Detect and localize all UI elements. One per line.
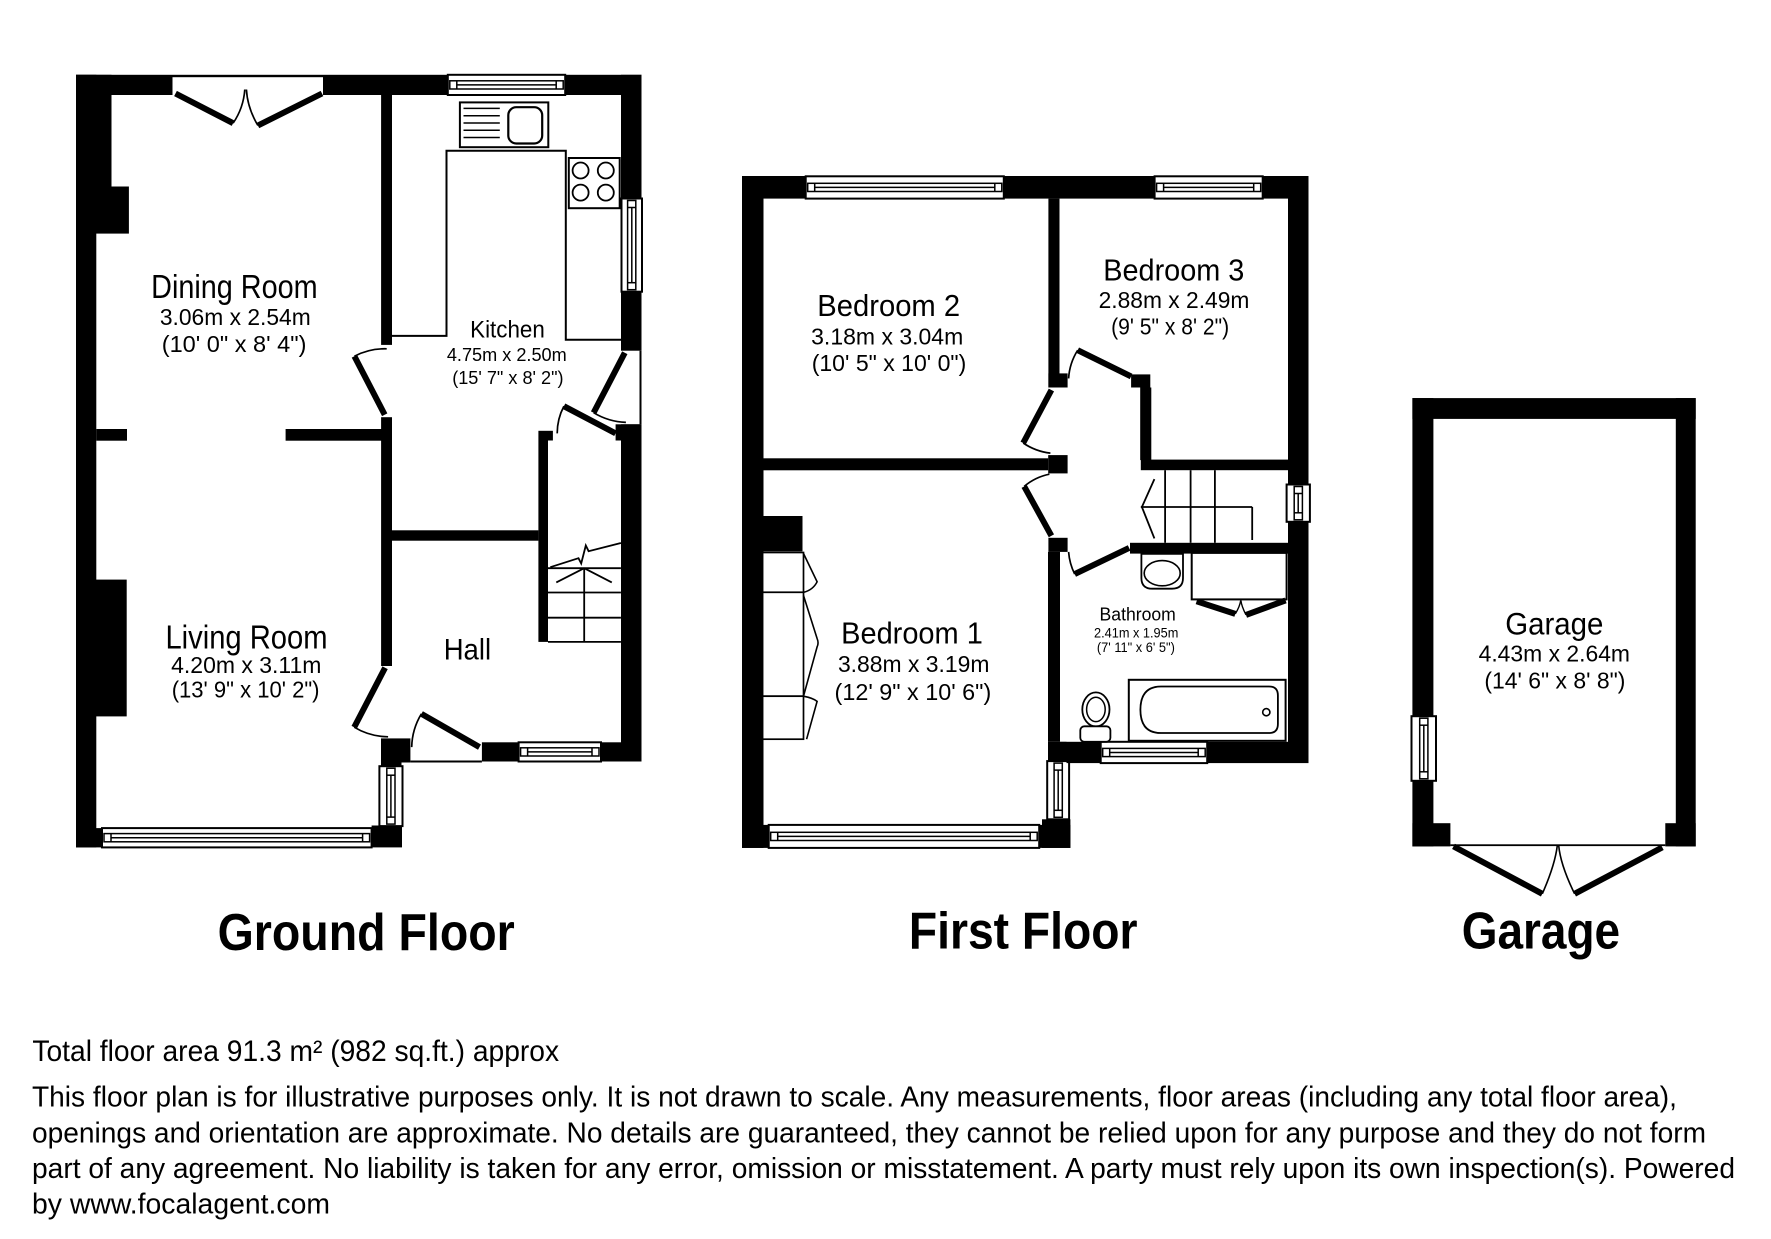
svg-text:2.41m x 1.95m: 2.41m x 1.95m	[1094, 625, 1178, 640]
svg-text:4.75m x 2.50m: 4.75m x 2.50m	[447, 344, 567, 365]
svg-text:Bedroom 3: Bedroom 3	[1103, 254, 1244, 288]
svg-text:Kitchen: Kitchen	[470, 317, 545, 344]
svg-text:Hall: Hall	[444, 634, 491, 667]
svg-text:This floor plan is for illustr: This floor plan is for illustrative purp…	[32, 1082, 1677, 1114]
svg-text:(13' 9" x 10' 2"): (13' 9" x 10' 2")	[172, 676, 320, 702]
svg-text:(15' 7" x 8' 2"): (15' 7" x 8' 2")	[452, 367, 563, 388]
svg-text:Garage: Garage	[1505, 606, 1603, 642]
svg-text:Garage: Garage	[1462, 901, 1620, 959]
svg-text:(10' 0" x 8' 4"): (10' 0" x 8' 4")	[162, 331, 307, 357]
svg-text:part of any agreement. No liab: part of any agreement. No liability is t…	[32, 1153, 1735, 1185]
svg-text:3.18m x 3.04m: 3.18m x 3.04m	[811, 324, 963, 350]
svg-text:4.20m x 3.11m: 4.20m x 3.11m	[171, 652, 321, 678]
svg-text:openings and orientation are a: openings and orientation are approximate…	[32, 1117, 1706, 1149]
svg-text:(14' 6" x 8' 8"): (14' 6" x 8' 8")	[1484, 668, 1625, 694]
svg-text:Bathroom: Bathroom	[1100, 603, 1176, 624]
svg-text:(10' 5" x 10' 0"): (10' 5" x 10' 0")	[812, 350, 967, 376]
svg-text:3.88m x 3.19m: 3.88m x 3.19m	[838, 651, 990, 677]
svg-text:by www.focalagent.com: by www.focalagent.com	[32, 1189, 330, 1221]
svg-text:First Floor: First Floor	[909, 902, 1138, 960]
svg-text:Dining Room: Dining Room	[151, 268, 318, 305]
svg-text:3.06m x 2.54m: 3.06m x 2.54m	[160, 304, 311, 330]
svg-text:(9' 5" x 8' 2"): (9' 5" x 8' 2")	[1111, 314, 1229, 340]
svg-text:4.43m x 2.64m: 4.43m x 2.64m	[1479, 641, 1630, 667]
svg-text:Bedroom 2: Bedroom 2	[817, 289, 960, 323]
svg-text:Total floor area 91.3 m² (982: Total floor area 91.3 m² (982 sq.ft.) ap…	[32, 1035, 559, 1068]
svg-text:(7' 11" x 6' 5"): (7' 11" x 6' 5")	[1097, 640, 1175, 655]
svg-text:Ground Floor: Ground Floor	[218, 903, 515, 961]
svg-text:Bedroom 1: Bedroom 1	[841, 617, 983, 651]
svg-text:2.88m x 2.49m: 2.88m x 2.49m	[1099, 287, 1250, 313]
svg-text:Living Room: Living Room	[165, 618, 327, 655]
svg-text:(12' 9" x 10' 6"): (12' 9" x 10' 6")	[835, 679, 992, 705]
